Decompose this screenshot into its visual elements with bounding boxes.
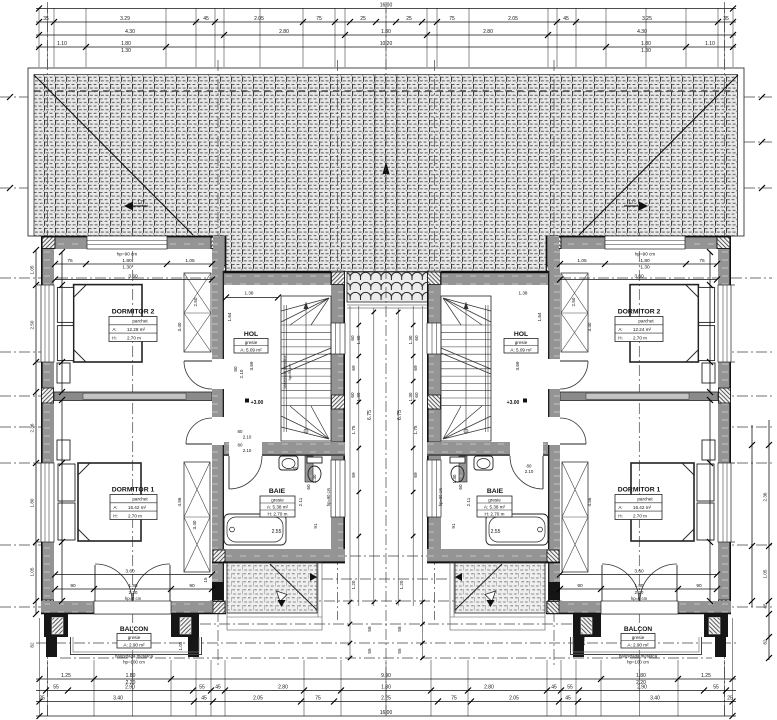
svg-text:90: 90 (189, 583, 195, 589)
svg-text:4.30: 4.30 (125, 29, 135, 35)
svg-text:2.10: 2.10 (243, 435, 252, 440)
svg-text:55: 55 (199, 685, 205, 691)
svg-text:80: 80 (238, 429, 243, 434)
svg-text:2.25: 2.25 (381, 696, 391, 702)
svg-text:45: 45 (563, 16, 569, 22)
svg-text:2.55: 2.55 (491, 529, 501, 535)
svg-text:3.69: 3.69 (249, 361, 254, 370)
svg-text:2.11: 2.11 (298, 497, 303, 506)
svg-text:BALCON: BALCON (120, 626, 148, 633)
svg-text:+3.00: +3.00 (507, 400, 520, 406)
svg-text:25: 25 (360, 16, 366, 22)
svg-text:1.80: 1.80 (126, 673, 136, 679)
svg-text:45: 45 (551, 685, 557, 691)
svg-text:69: 69 (351, 365, 356, 371)
svg-text:2.80: 2.80 (279, 29, 289, 35)
svg-text:69: 69 (413, 365, 418, 371)
svg-text:45: 45 (201, 696, 207, 702)
svg-text:A:: A: (618, 327, 622, 332)
svg-text:hp=90 cm: hp=90 cm (117, 252, 137, 257)
svg-text:H:: H: (618, 335, 623, 340)
svg-text:2.80: 2.80 (278, 685, 288, 691)
svg-text:60: 60 (306, 484, 311, 490)
svg-text:1.38: 1.38 (245, 291, 254, 296)
svg-text:balustrada metalica: balustrada metalica (283, 355, 287, 389)
svg-text:25: 25 (727, 696, 733, 702)
svg-text:75: 75 (67, 258, 73, 264)
svg-text:1.80: 1.80 (641, 41, 651, 47)
svg-text:90: 90 (696, 583, 702, 589)
svg-text:45: 45 (215, 685, 221, 691)
svg-text:DORMITOR 1: DORMITOR 1 (618, 487, 661, 494)
svg-text:2.50: 2.50 (30, 320, 35, 329)
svg-text:1.38: 1.38 (519, 291, 528, 296)
svg-text:A: 2.90 m²: A: 2.90 m² (627, 643, 649, 648)
svg-text:DORMITOR 1: DORMITOR 1 (112, 487, 155, 494)
svg-text:75: 75 (699, 258, 705, 264)
svg-text:A: 2.90 m²: A: 2.90 m² (123, 643, 145, 648)
svg-text:75: 75 (451, 696, 457, 702)
svg-text:A: 5.09 m²: A: 5.09 m² (510, 348, 532, 353)
svg-text:4.56: 4.56 (177, 497, 182, 506)
svg-text:1.80: 1.80 (30, 498, 35, 507)
svg-text:2.70 m: 2.70 m (633, 335, 647, 340)
svg-text:1.64: 1.64 (537, 312, 542, 321)
svg-text:2.80: 2.80 (484, 685, 494, 691)
svg-text:3.40: 3.40 (113, 696, 123, 702)
svg-text:A: 5.38 m²: A: 5.38 m² (484, 505, 506, 510)
svg-text:75: 75 (449, 16, 455, 22)
svg-text:H:: H: (618, 513, 623, 518)
svg-text:6.75: 6.75 (367, 410, 373, 420)
svg-text:1.05: 1.05 (581, 636, 586, 645)
svg-text:55: 55 (713, 685, 719, 691)
svg-text:2.80: 2.80 (483, 29, 493, 35)
svg-text:2.70 m: 2.70 m (127, 335, 141, 340)
svg-text:1.80: 1.80 (635, 583, 644, 588)
svg-text:A:: A: (112, 327, 116, 332)
svg-text:55: 55 (567, 685, 573, 691)
svg-text:2.36: 2.36 (30, 423, 35, 432)
svg-text:2.05: 2.05 (254, 16, 264, 22)
svg-text:90: 90 (70, 583, 76, 589)
svg-text:A: 5.09 m²: A: 5.09 m² (240, 348, 262, 353)
svg-text:1.10: 1.10 (57, 41, 67, 47)
svg-text:parchet: parchet (132, 497, 148, 502)
svg-text:60: 60 (414, 335, 419, 341)
svg-text:1.80: 1.80 (636, 673, 646, 679)
svg-text:3.69: 3.69 (515, 361, 520, 370)
svg-text:3.60: 3.60 (128, 274, 138, 280)
svg-text:parchet: parchet (637, 497, 653, 502)
svg-text:55: 55 (397, 648, 402, 654)
svg-text:55: 55 (367, 648, 372, 654)
svg-text:1.25: 1.25 (61, 673, 71, 679)
svg-text:gresie: gresie (271, 498, 284, 503)
svg-text:gresie: gresie (632, 635, 645, 640)
svg-text:2.10: 2.10 (243, 448, 252, 453)
svg-text:gresie: gresie (128, 635, 141, 640)
svg-text:35: 35 (723, 16, 729, 22)
svg-text:hp=90 cm: hp=90 cm (326, 487, 331, 506)
svg-text:4.56: 4.56 (587, 497, 592, 506)
svg-text:gresie: gresie (515, 340, 528, 345)
svg-text:91: 91 (451, 523, 456, 529)
svg-text:3.60: 3.60 (634, 274, 644, 280)
svg-text:gresie: gresie (488, 498, 501, 503)
svg-text:2.10: 2.10 (239, 369, 244, 378)
svg-text:H:: H: (113, 513, 118, 518)
svg-text:2.36: 2.36 (763, 492, 768, 501)
svg-text:12.24 m²: 12.24 m² (633, 327, 652, 332)
svg-text:35: 35 (43, 16, 49, 22)
svg-text:hp=90 cm: hp=90 cm (635, 252, 655, 257)
svg-text:80: 80 (238, 443, 243, 448)
svg-text:6.75: 6.75 (397, 410, 403, 420)
svg-text:2.70 m: 2.70 m (633, 513, 647, 518)
svg-text:60: 60 (350, 392, 355, 398)
svg-text:69: 69 (351, 472, 356, 478)
svg-text:1.05: 1.05 (178, 641, 183, 650)
svg-text:80: 80 (527, 464, 532, 469)
svg-text:HOL: HOL (244, 331, 258, 338)
svg-text:1.05: 1.05 (185, 258, 195, 264)
svg-text:55: 55 (53, 685, 59, 691)
svg-text:1.25: 1.25 (701, 673, 711, 679)
svg-text:2.50: 2.50 (571, 297, 576, 306)
svg-text:3.40: 3.40 (192, 520, 197, 529)
svg-text:91: 91 (313, 523, 318, 529)
svg-text:1.05: 1.05 (577, 258, 587, 264)
svg-text:9.90: 9.90 (381, 673, 391, 679)
svg-text:2.50: 2.50 (193, 297, 198, 306)
svg-text:1.75: 1.75 (413, 425, 418, 434)
svg-text:1.05: 1.05 (763, 569, 768, 578)
svg-text:3.40: 3.40 (587, 322, 592, 331)
svg-text:BALCON: BALCON (624, 626, 652, 633)
svg-text:BAIE: BAIE (269, 488, 286, 495)
svg-text:90: 90 (577, 583, 583, 589)
svg-text:1.80: 1.80 (122, 258, 132, 264)
svg-text:80: 80 (233, 366, 238, 372)
svg-text:3.60: 3.60 (634, 569, 644, 575)
svg-text:45: 45 (203, 16, 209, 22)
svg-text:1.30: 1.30 (121, 48, 131, 54)
svg-text:58: 58 (367, 626, 372, 632)
svg-text:hp=90 cm: hp=90 cm (438, 487, 443, 506)
svg-text:+3.00: +3.00 (251, 400, 264, 406)
svg-text:parchet: parchet (132, 319, 148, 324)
svg-text:12.28 m²: 12.28 m² (127, 327, 146, 332)
svg-text:1.64: 1.64 (227, 312, 232, 321)
svg-text:3.60: 3.60 (125, 569, 135, 575)
svg-text:1.05: 1.05 (30, 567, 35, 576)
svg-text:balustrada metalica: balustrada metalica (115, 654, 154, 659)
svg-text:69: 69 (413, 472, 418, 478)
svg-text:A: 5.38 m²: A: 5.38 m² (267, 505, 289, 510)
svg-text:2.05: 2.05 (509, 696, 519, 702)
svg-text:1.30: 1.30 (452, 474, 457, 483)
svg-text:45: 45 (763, 603, 768, 609)
svg-text:16.00: 16.00 (380, 710, 393, 716)
svg-text:hp=100 cm: hp=100 cm (627, 660, 649, 665)
svg-text:A:: A: (618, 505, 622, 510)
svg-text:BAIE: BAIE (487, 488, 504, 495)
svg-text:1.30: 1.30 (408, 392, 413, 401)
svg-text:gresie: gresie (245, 340, 258, 345)
svg-text:17°: 17° (628, 200, 636, 206)
svg-text:DORMITOR 2: DORMITOR 2 (618, 309, 661, 316)
svg-text:balustrada metalica: balustrada metalica (619, 654, 658, 659)
svg-text:3.25: 3.25 (642, 16, 652, 22)
svg-text:75: 75 (315, 696, 321, 702)
svg-text:hp=100 cm: hp=100 cm (123, 660, 145, 665)
svg-text:82: 82 (30, 642, 35, 648)
svg-text:1.10: 1.10 (705, 41, 715, 47)
svg-text:1.80: 1.80 (640, 258, 650, 264)
svg-text:25: 25 (406, 16, 412, 22)
svg-text:1.80: 1.80 (121, 41, 131, 47)
svg-text:2.05: 2.05 (508, 16, 518, 22)
svg-text:hp=90 cm: hp=90 cm (288, 364, 292, 381)
svg-text:1.30: 1.30 (640, 265, 650, 271)
svg-text:1.30: 1.30 (356, 335, 361, 344)
svg-text:1.20: 1.20 (351, 580, 356, 589)
svg-text:2.10: 2.10 (525, 469, 534, 474)
svg-text:parchet: parchet (638, 319, 654, 324)
svg-text:25: 25 (39, 696, 45, 702)
svg-text:2.20: 2.20 (129, 590, 138, 595)
svg-text:58: 58 (397, 626, 402, 632)
svg-text:2.05: 2.05 (253, 696, 263, 702)
svg-text:3.40: 3.40 (650, 696, 660, 702)
svg-text:2.90: 2.90 (637, 685, 647, 691)
svg-text:82: 82 (763, 639, 768, 645)
svg-text:1.20: 1.20 (399, 580, 404, 589)
svg-text:45: 45 (565, 696, 571, 702)
svg-text:1.05: 1.05 (30, 265, 35, 274)
svg-text:H: 2.70 m: H: 2.70 m (485, 512, 505, 517)
svg-text:1.80: 1.80 (381, 685, 391, 691)
svg-text:hp=0 cm: hp=0 cm (125, 596, 142, 601)
svg-text:2.55: 2.55 (272, 529, 282, 535)
svg-text:60: 60 (458, 484, 463, 490)
svg-text:A:: A: (113, 505, 117, 510)
svg-text:4.30: 4.30 (637, 29, 647, 35)
svg-text:75: 75 (316, 16, 322, 22)
svg-text:2.11: 2.11 (466, 497, 471, 506)
svg-text:60: 60 (350, 335, 355, 341)
svg-text:1.30: 1.30 (641, 48, 651, 54)
svg-text:1.30: 1.30 (122, 265, 132, 271)
svg-text:16.42 m²: 16.42 m² (128, 505, 147, 510)
svg-text:1.75: 1.75 (351, 425, 356, 434)
svg-text:1.30: 1.30 (312, 474, 317, 483)
svg-text:60: 60 (414, 392, 419, 398)
svg-text:2.90: 2.90 (125, 685, 135, 691)
svg-text:15: 15 (203, 577, 208, 583)
svg-text:HOL: HOL (514, 331, 528, 338)
svg-text:2.70 m: 2.70 m (128, 513, 142, 518)
svg-text:H:: H: (112, 335, 117, 340)
svg-text:17°: 17° (137, 200, 145, 206)
svg-text:65: 65 (293, 466, 298, 471)
svg-text:H: 2.70 m: H: 2.70 m (268, 512, 288, 517)
svg-text:1.30: 1.30 (356, 392, 361, 401)
svg-text:16.42 m²: 16.42 m² (633, 505, 652, 510)
svg-text:1.80: 1.80 (129, 583, 138, 588)
svg-text:DORMITOR 2: DORMITOR 2 (112, 309, 155, 316)
svg-text:1.30: 1.30 (408, 335, 413, 344)
svg-text:3.29: 3.29 (120, 16, 130, 22)
svg-text:2.20: 2.20 (635, 590, 644, 595)
svg-text:hp=0 cm: hp=0 cm (631, 596, 648, 601)
svg-text:3.40: 3.40 (177, 322, 182, 331)
